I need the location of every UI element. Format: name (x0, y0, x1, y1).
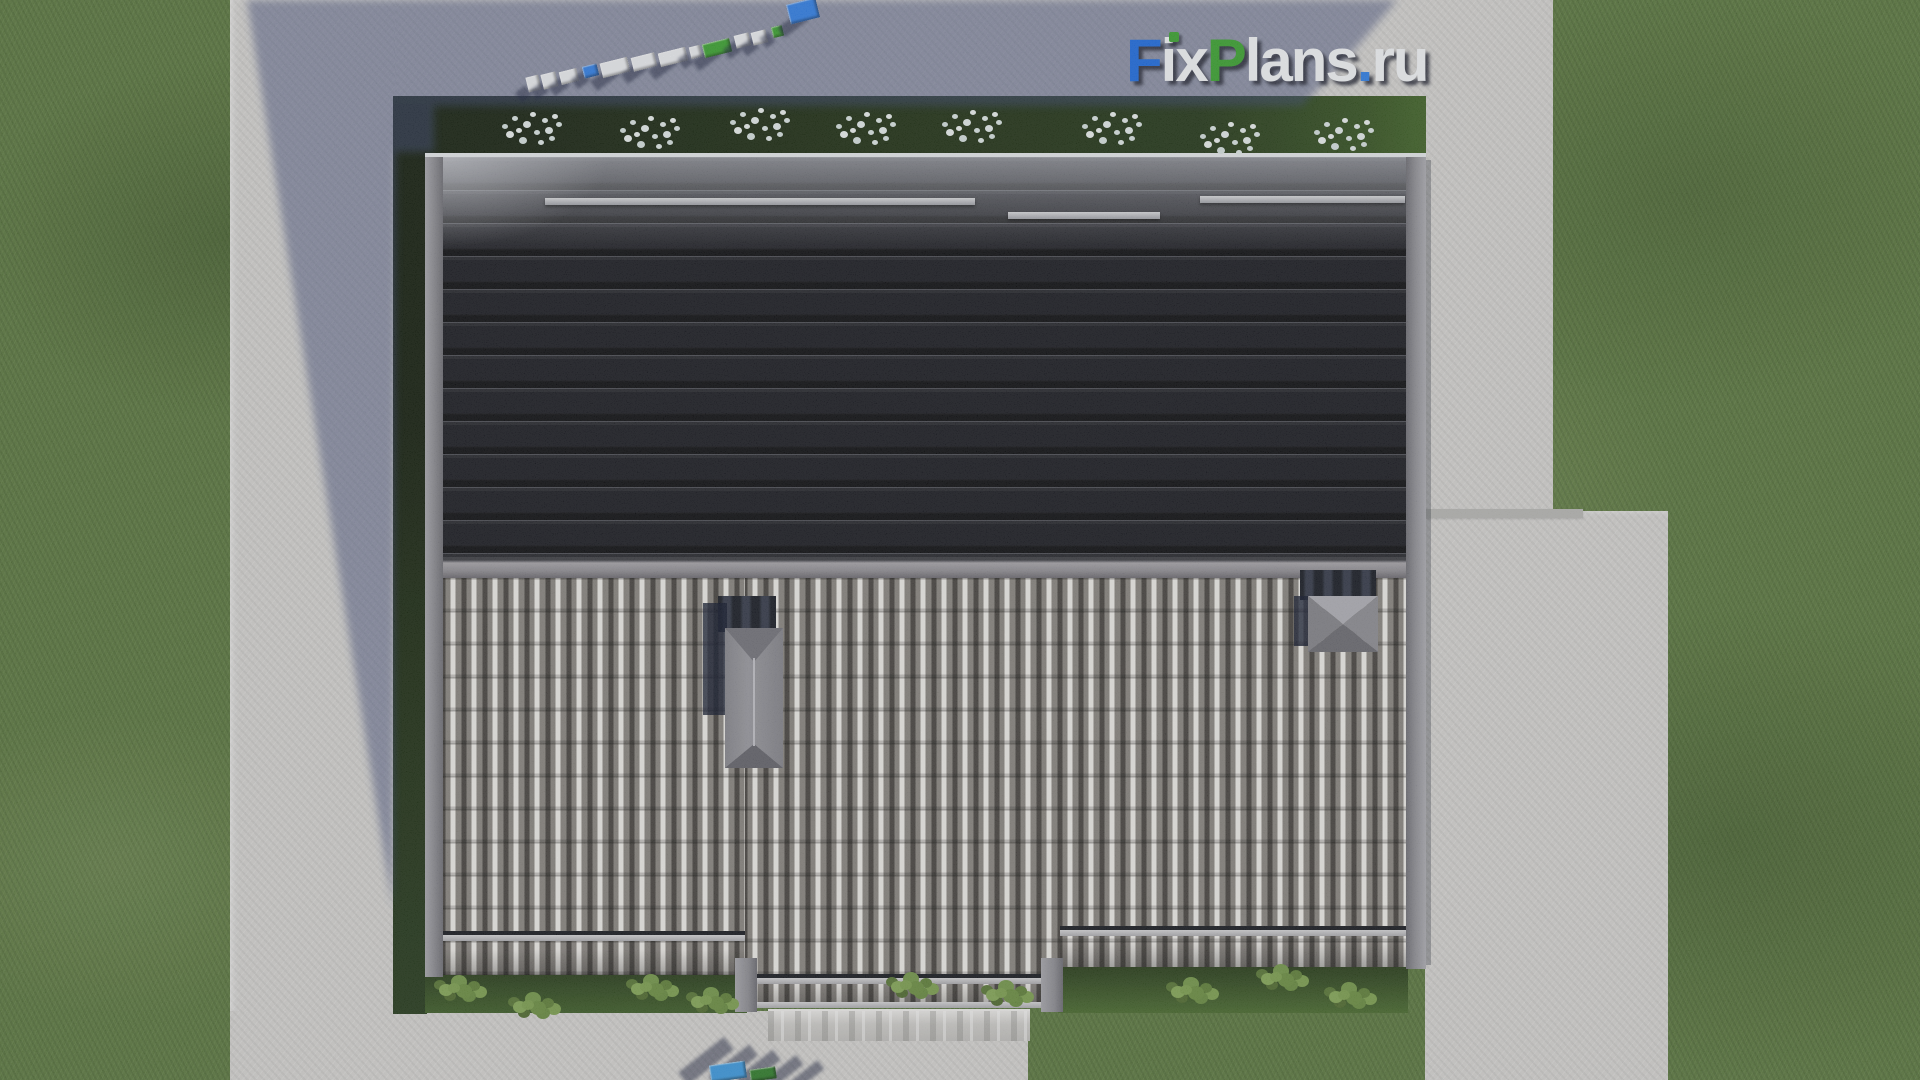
garden-sprites (0, 0, 1920, 1080)
flower-cluster (516, 128, 522, 133)
flower-cluster (956, 126, 962, 131)
logo-letters-ix: ix (1161, 27, 1207, 94)
garden-bush (640, 982, 652, 992)
flower-cluster (1214, 138, 1220, 143)
sign-letter-block (749, 1066, 776, 1080)
garden-bush (448, 983, 460, 993)
garden-bush (1180, 985, 1192, 995)
logo-letters-lans: lans (1245, 27, 1357, 94)
garden-bush (900, 980, 912, 990)
garden-bush (1338, 990, 1350, 1000)
garden-bush (995, 988, 1007, 998)
flower-cluster (1096, 128, 1102, 133)
garden-bush (700, 995, 712, 1005)
logo-letter-f: F (1126, 27, 1161, 94)
fixplans-watermark: FixPlans.ru (1126, 26, 1427, 95)
site-plan-render: FixPlans.ru (0, 0, 1920, 1080)
logo-i-dot (1169, 32, 1179, 42)
logo-dot: . (1357, 27, 1372, 94)
flower-cluster (850, 128, 856, 133)
flower-cluster (744, 124, 750, 129)
logo-letter-p: P (1207, 27, 1245, 94)
garden-bush (1270, 972, 1282, 982)
flower-cluster (634, 132, 640, 137)
garden-bush (522, 1000, 534, 1010)
sign-letter-block (786, 0, 820, 24)
logo-letters-ru: ru (1371, 27, 1427, 94)
flower-cluster (1328, 134, 1334, 139)
